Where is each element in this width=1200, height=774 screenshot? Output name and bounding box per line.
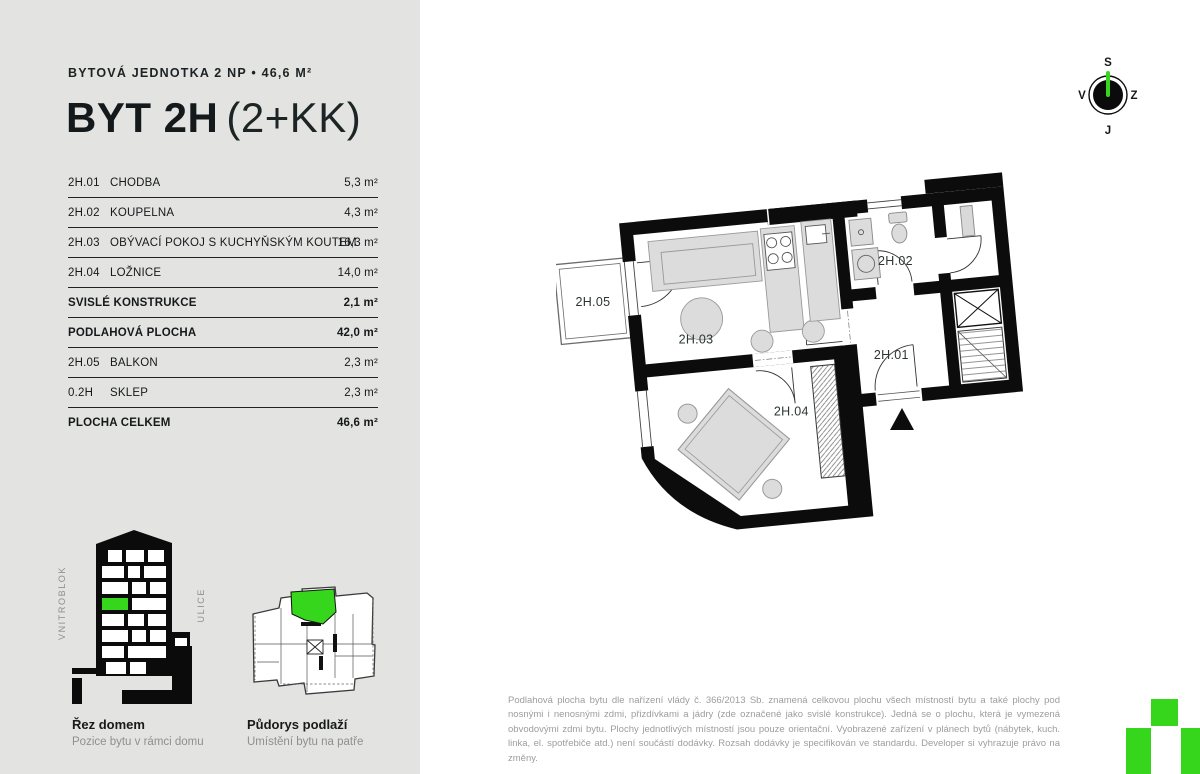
window <box>102 582 128 594</box>
window <box>128 566 140 578</box>
stair-core <box>307 640 323 654</box>
room-area: 2,3 m² <box>344 357 378 369</box>
living-room-label: 2H.03 <box>679 333 714 347</box>
row-label: SVISLÉ KONSTRUKCE <box>68 297 378 309</box>
unit-subtitle: BYTOVÁ JEDNOTKA 2 NP • 46,6 M² <box>68 66 312 80</box>
table-row: 2H.01 CHODBA 5,3 m² <box>68 168 378 198</box>
window <box>132 582 146 594</box>
room-name: KOUPELNA <box>110 207 378 219</box>
page: BYTOVÁ JEDNOTKA 2 NP • 46,6 M² BYT 2H(2+… <box>0 0 1200 774</box>
compass-east-side-label: Z <box>1130 90 1137 102</box>
logo-block-left <box>1126 728 1151 774</box>
table-row: 2H.03 OBÝVACÍ POKOJ S KUCHYŇSKÝM KOUTEM … <box>68 228 378 258</box>
courtyard-level <box>72 668 96 674</box>
room-area: 5,3 m² <box>344 177 378 189</box>
window <box>102 646 124 658</box>
hallway-label: 2H.01 <box>874 348 909 362</box>
balcony-label: 2H.05 <box>575 295 610 309</box>
room-name: SKLEP <box>110 387 378 399</box>
window <box>150 630 166 642</box>
bedroom-label: 2H.04 <box>774 405 809 419</box>
table-row: SVISLÉ KONSTRUKCE 2,1 m² <box>68 288 378 318</box>
window <box>130 662 146 674</box>
unit-layout: (2+KK) <box>226 94 361 141</box>
row-value: 42,0 m² <box>337 327 378 339</box>
window <box>148 550 164 562</box>
window <box>128 646 166 658</box>
wall-chunk <box>319 656 323 670</box>
room-code: 2H.04 <box>68 267 110 279</box>
room-code: 0.2H <box>68 387 110 399</box>
compass-north-label: S <box>1104 57 1112 69</box>
room-area-table: 2H.01 CHODBA 5,3 m² 2H.02 KOUPELNA 4,3 m… <box>68 168 378 437</box>
stove <box>764 232 795 271</box>
room-code: 2H.01 <box>68 177 110 189</box>
left-step <box>72 678 82 704</box>
washing-machine <box>852 248 881 280</box>
compass: S Z J V <box>1075 50 1141 140</box>
room-area: 4,3 m² <box>344 207 378 219</box>
window <box>132 598 166 610</box>
section-label-left: VNITROBLOK <box>57 566 67 640</box>
unit-info-panel: BYTOVÁ JEDNOTKA 2 NP • 46,6 M² BYT 2H(2+… <box>0 0 420 774</box>
toilet-cistern <box>888 212 907 224</box>
window <box>102 614 124 626</box>
total-value: 46,6 m² <box>337 417 378 429</box>
hallway-floor <box>853 293 950 394</box>
page-title: BYT 2H(2+KK) <box>66 94 361 142</box>
logo-block-top <box>1151 699 1178 726</box>
window <box>128 614 144 626</box>
room-area: 2,3 m² <box>344 387 378 399</box>
table-row: 2H.04 LOŽNICE 14,0 m² <box>68 258 378 288</box>
room-area: 14,0 m² <box>338 267 378 279</box>
room-code: 2H.05 <box>68 357 110 369</box>
sofa <box>648 231 762 291</box>
wall-chunk <box>333 634 337 652</box>
window <box>144 566 166 578</box>
section-caption-subtitle: Pozice bytu v rámci domu <box>72 736 204 748</box>
floor-caption-title: Půdorys podlaží <box>247 717 347 732</box>
window <box>102 630 128 642</box>
window <box>150 582 166 594</box>
plan-rotated-group <box>556 172 1034 544</box>
room-code: 2H.03 <box>68 237 110 249</box>
window <box>102 566 124 578</box>
total-label: PLOCHA CELKEM <box>68 417 378 429</box>
bathroom-window <box>867 194 902 214</box>
floor-locator-diagram <box>243 584 383 702</box>
table-row: 0.2H SKLEP 2,3 m² <box>68 378 378 408</box>
room-name: BALKON <box>110 357 378 369</box>
room-area: 16,3 m² <box>338 237 378 249</box>
table-row: PODLAHOVÁ PLOCHA 42,0 m² <box>68 318 378 348</box>
entry-arrow <box>890 408 914 430</box>
window <box>148 614 166 626</box>
window <box>126 550 144 562</box>
table-row: 2H.02 KOUPELNA 4,3 m² <box>68 198 378 228</box>
window <box>106 662 126 674</box>
bathroom-label: 2H.02 <box>878 254 913 268</box>
row-label: PODLAHOVÁ PLOCHA <box>68 327 378 339</box>
compass-west-side-label: V <box>1078 90 1086 102</box>
table-row: 2H.05 BALKON 2,3 m² <box>68 348 378 378</box>
logo-block-right <box>1181 728 1200 774</box>
window <box>132 630 146 642</box>
building-section-diagram <box>72 528 192 710</box>
room-code: 2H.02 <box>68 207 110 219</box>
row-value: 2,1 m² <box>344 297 378 309</box>
apartment-floor-plan: 2H.05 2H.03 2H.02 2H.01 2H.04 <box>556 150 1046 550</box>
vanity-sink <box>849 218 873 246</box>
window <box>108 550 122 562</box>
fridge <box>805 225 827 245</box>
legal-disclaimer: Podlahová plocha bytu dle nařízení vlády… <box>508 694 1060 766</box>
section-caption-title: Řez domem <box>72 717 145 732</box>
unit-code: BYT 2H <box>66 94 218 141</box>
radiator <box>960 205 975 236</box>
floor-caption-subtitle: Umístění bytu na patře <box>247 736 363 748</box>
table-row-total: PLOCHA CELKEM 46,6 m² <box>68 408 378 437</box>
highlighted-unit <box>102 598 128 610</box>
section-label-right: ULICE <box>196 588 206 623</box>
utility-shaft <box>954 289 1006 382</box>
compass-south-label: J <box>1105 125 1111 137</box>
room-name: CHODBA <box>110 177 378 189</box>
